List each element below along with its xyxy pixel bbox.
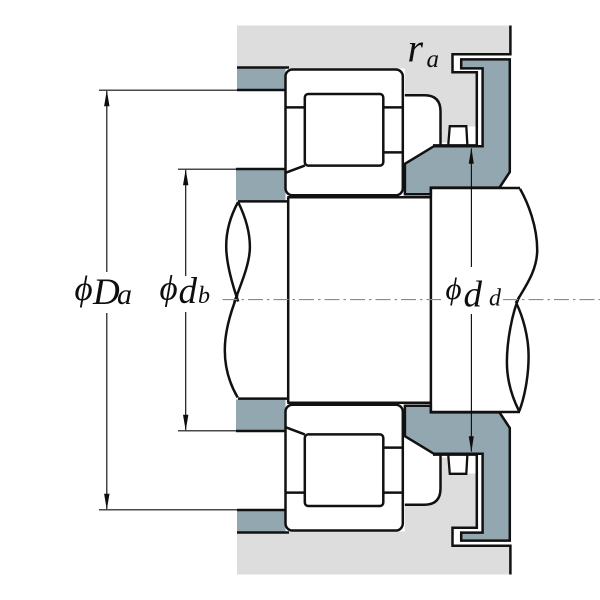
svg-text:b: b (198, 283, 210, 309)
svg-text:r: r (408, 26, 424, 71)
svg-text:a: a (117, 278, 132, 311)
svg-text:ϕ: ϕ (446, 271, 462, 306)
svg-text:a: a (427, 46, 440, 73)
svg-text:ϕ: ϕ (160, 269, 178, 308)
svg-text:d: d (464, 275, 483, 316)
svg-text:d: d (179, 271, 198, 312)
svg-text:ϕ: ϕ (75, 269, 93, 308)
svg-text:d: d (489, 286, 502, 312)
svg-text:D: D (92, 272, 120, 313)
